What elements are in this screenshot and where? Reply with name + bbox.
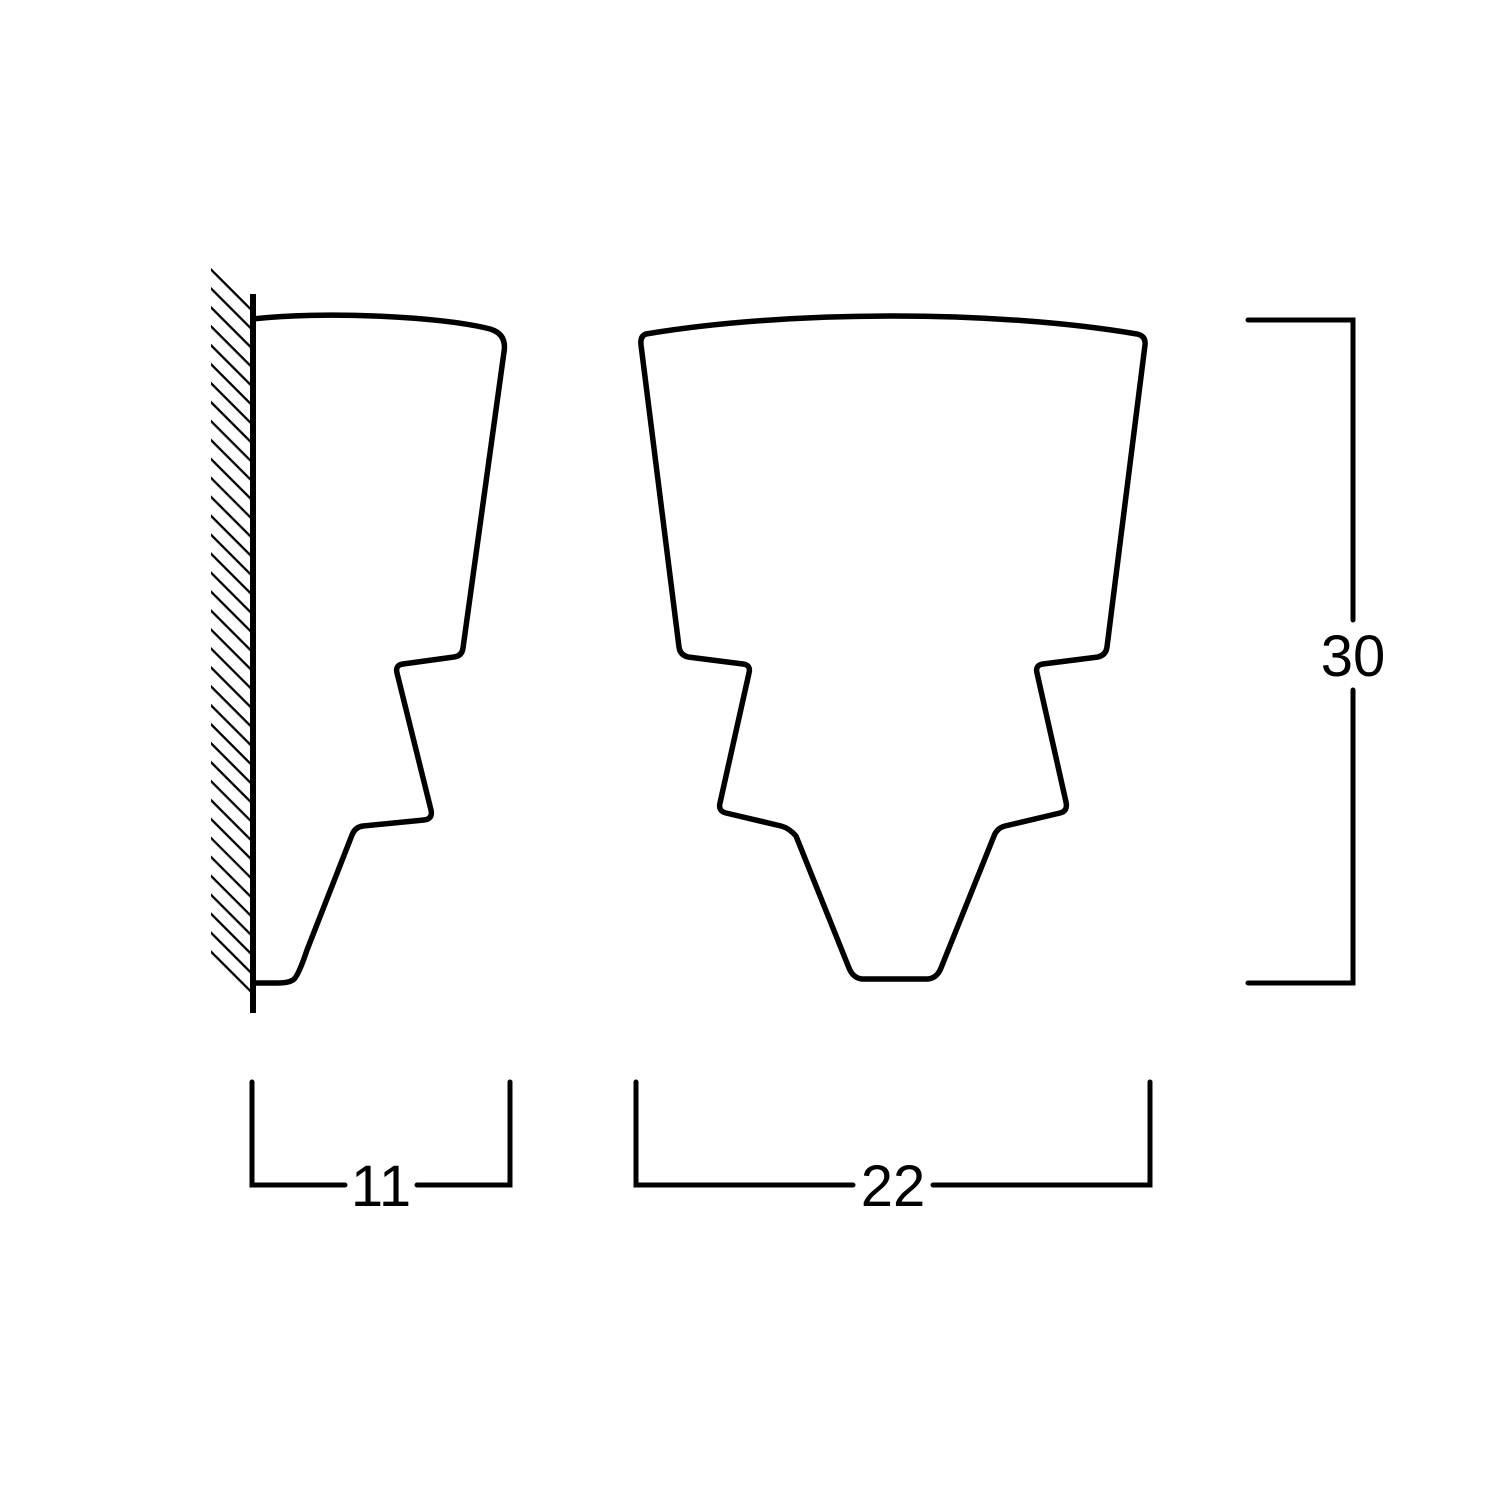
dimension-height: 30 xyxy=(1248,320,1385,983)
dimension-depth-label: 11 xyxy=(351,1154,411,1219)
front-view-outline xyxy=(641,316,1145,979)
dimension-width: 22 xyxy=(636,1082,1150,1219)
technical-drawing-canvas: 11 22 30 xyxy=(0,0,1500,1500)
wall-hatch xyxy=(211,255,253,1010)
dimension-depth: 11 xyxy=(252,1082,510,1219)
dimension-height-label: 30 xyxy=(1321,624,1386,689)
side-view-outline xyxy=(253,315,504,983)
drawing-svg: 11 22 30 xyxy=(0,0,1500,1500)
dimension-width-label: 22 xyxy=(861,1154,926,1219)
